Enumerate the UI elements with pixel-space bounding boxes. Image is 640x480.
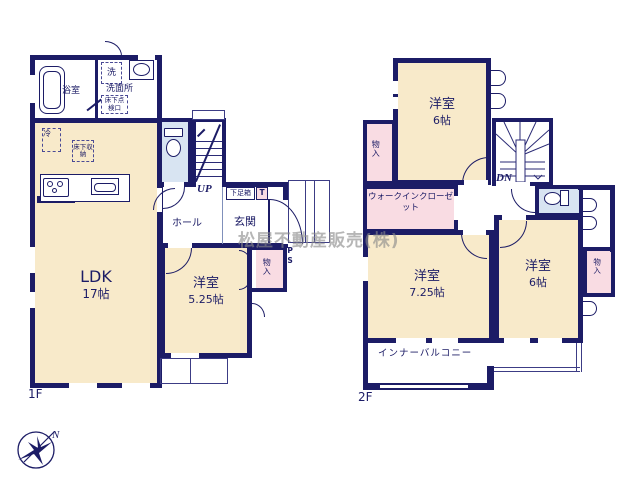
floor-plan-canvas: 洗 床下点検口 冷 床下収納 浴室 洗面所 LDK 17帖 ホール 玄関 下足箱… [0, 0, 640, 480]
balcony-railing-horizontal [494, 367, 580, 372]
toilet-1f-bowl [166, 139, 181, 157]
ldk-name: LDK [56, 268, 136, 286]
bedroom-6e-window-2 [538, 338, 562, 343]
bath-window [30, 75, 35, 103]
bedroom-6n-casement-window-2 [491, 93, 506, 109]
balcony-corner-post [487, 366, 494, 390]
toilet-1f-tank [164, 128, 183, 137]
bedroom-725-size: 7.25帖 [387, 287, 467, 300]
balcony-railing-vertical [576, 343, 582, 372]
ldk-west-window-1 [30, 247, 35, 273]
bedroom-725-window-2 [432, 338, 458, 343]
ldk-south-window-2 [122, 383, 150, 388]
hall-label: ホール [172, 218, 202, 230]
stove-burner-1 [47, 181, 53, 187]
bathtub-inner [43, 71, 61, 109]
bedroom-6e-casement-window-1 [583, 216, 597, 230]
balcony-window [380, 385, 468, 388]
bedroom-525-window [171, 353, 199, 358]
floor1-label: 1F [28, 388, 43, 402]
stove-burner-3 [52, 188, 57, 193]
kitchen-sink-basin [94, 183, 116, 192]
watermark-text: 松屋不動産販売(株) [238, 226, 400, 251]
closet-1f-door-gap [252, 250, 256, 288]
stairs-down-label: DN [496, 172, 512, 185]
ldk-west-window-2 [30, 292, 35, 308]
back-door-arc [105, 41, 122, 56]
bedroom-725-window-1 [396, 338, 426, 343]
underfloor-hatch-label: 床下点検口 [102, 97, 127, 112]
washroom-sink-bowl [133, 63, 150, 76]
toilet-mark-box: T [256, 187, 268, 200]
nook-right-wall [610, 185, 615, 252]
washroom-label: 洗面所 [106, 84, 133, 94]
bedroom-525-window-arc [252, 303, 265, 317]
toilet-mark-label: T [259, 189, 264, 198]
bedroom-725-label: 洋室 7.25帖 [387, 270, 467, 300]
stairs-top-bay-outline [192, 110, 225, 120]
underfloor-storage-box: 床下収納 [72, 140, 94, 162]
bedroom-6n-casement-window-1 [491, 70, 506, 86]
bathroom-label: 浴室 [62, 86, 80, 96]
bedroom-525-name: 洋室 [166, 277, 246, 292]
underfloor-storage-label: 床下収納 [73, 144, 93, 159]
ldk-south-window-1 [69, 383, 97, 388]
approach-divider-line [190, 358, 191, 384]
shoe-box-label: 下足箱 [230, 189, 251, 197]
closet-2f-west-label: 物入 [371, 140, 380, 158]
toilet-2f-tank [560, 190, 569, 206]
closet-1f-label: 物入 [262, 258, 271, 276]
bath-washroom-divider-wall [95, 60, 98, 118]
fridge-label: 冷 [43, 129, 51, 138]
wic-door-gap [454, 196, 458, 220]
stairs-1f-treads [196, 135, 222, 182]
bedroom-6n-label: 洋室 6帖 [402, 98, 482, 128]
toilet-2f-casement-window [583, 198, 597, 212]
toilet-2f-bowl [544, 192, 561, 205]
bedroom-525-label: 洋室 5.25帖 [166, 277, 246, 307]
bedroom-6n-window-2 [393, 97, 398, 109]
stove-burner-2 [57, 181, 63, 187]
laundry-space: 洗 [101, 62, 122, 84]
shoe-box: 下足箱 [226, 187, 255, 200]
bedroom-6e-window-1 [504, 338, 530, 343]
ldk-label: LDK 17帖 [56, 268, 136, 302]
bedroom-6n-name: 洋室 [402, 98, 482, 113]
toilet-2f-door-arc [511, 189, 535, 213]
laundry-label: 洗 [107, 68, 116, 78]
underfloor-hatch-box: 床下点検口 [101, 95, 128, 114]
bedroom-6e-casement-window-2 [583, 301, 597, 316]
closet-2f-east-label: 物入 [592, 258, 601, 275]
ldk-room [30, 118, 162, 388]
stairs-up-label: UP [197, 183, 212, 196]
compass-icon: N [12, 420, 68, 476]
floor2-label: 2F [358, 391, 373, 405]
ldk-size: 17帖 [56, 288, 136, 302]
fridge-space: 冷 [42, 128, 61, 152]
bedroom-6e-label: 洋室 6帖 [498, 260, 578, 290]
bedroom-725-west-window [363, 257, 368, 281]
approach-outline [160, 358, 228, 384]
compass-north-text: N [51, 429, 60, 441]
inner-balcony-label: インナーバルコニー [378, 349, 472, 360]
bedroom-6e-size: 6帖 [498, 277, 578, 290]
bedroom-6n-window-1 [393, 81, 398, 94]
entrance-step-line [222, 187, 223, 244]
bedroom-525-size: 5.25帖 [166, 294, 246, 307]
bedroom-725-name: 洋室 [387, 270, 467, 285]
bedroom-6n-size: 6帖 [402, 115, 482, 128]
walk-in-closet-label: ウォークインクローゼット [367, 192, 454, 215]
bedroom-6e-name: 洋室 [498, 260, 578, 275]
bedroom-6e-door-gap [502, 215, 526, 220]
